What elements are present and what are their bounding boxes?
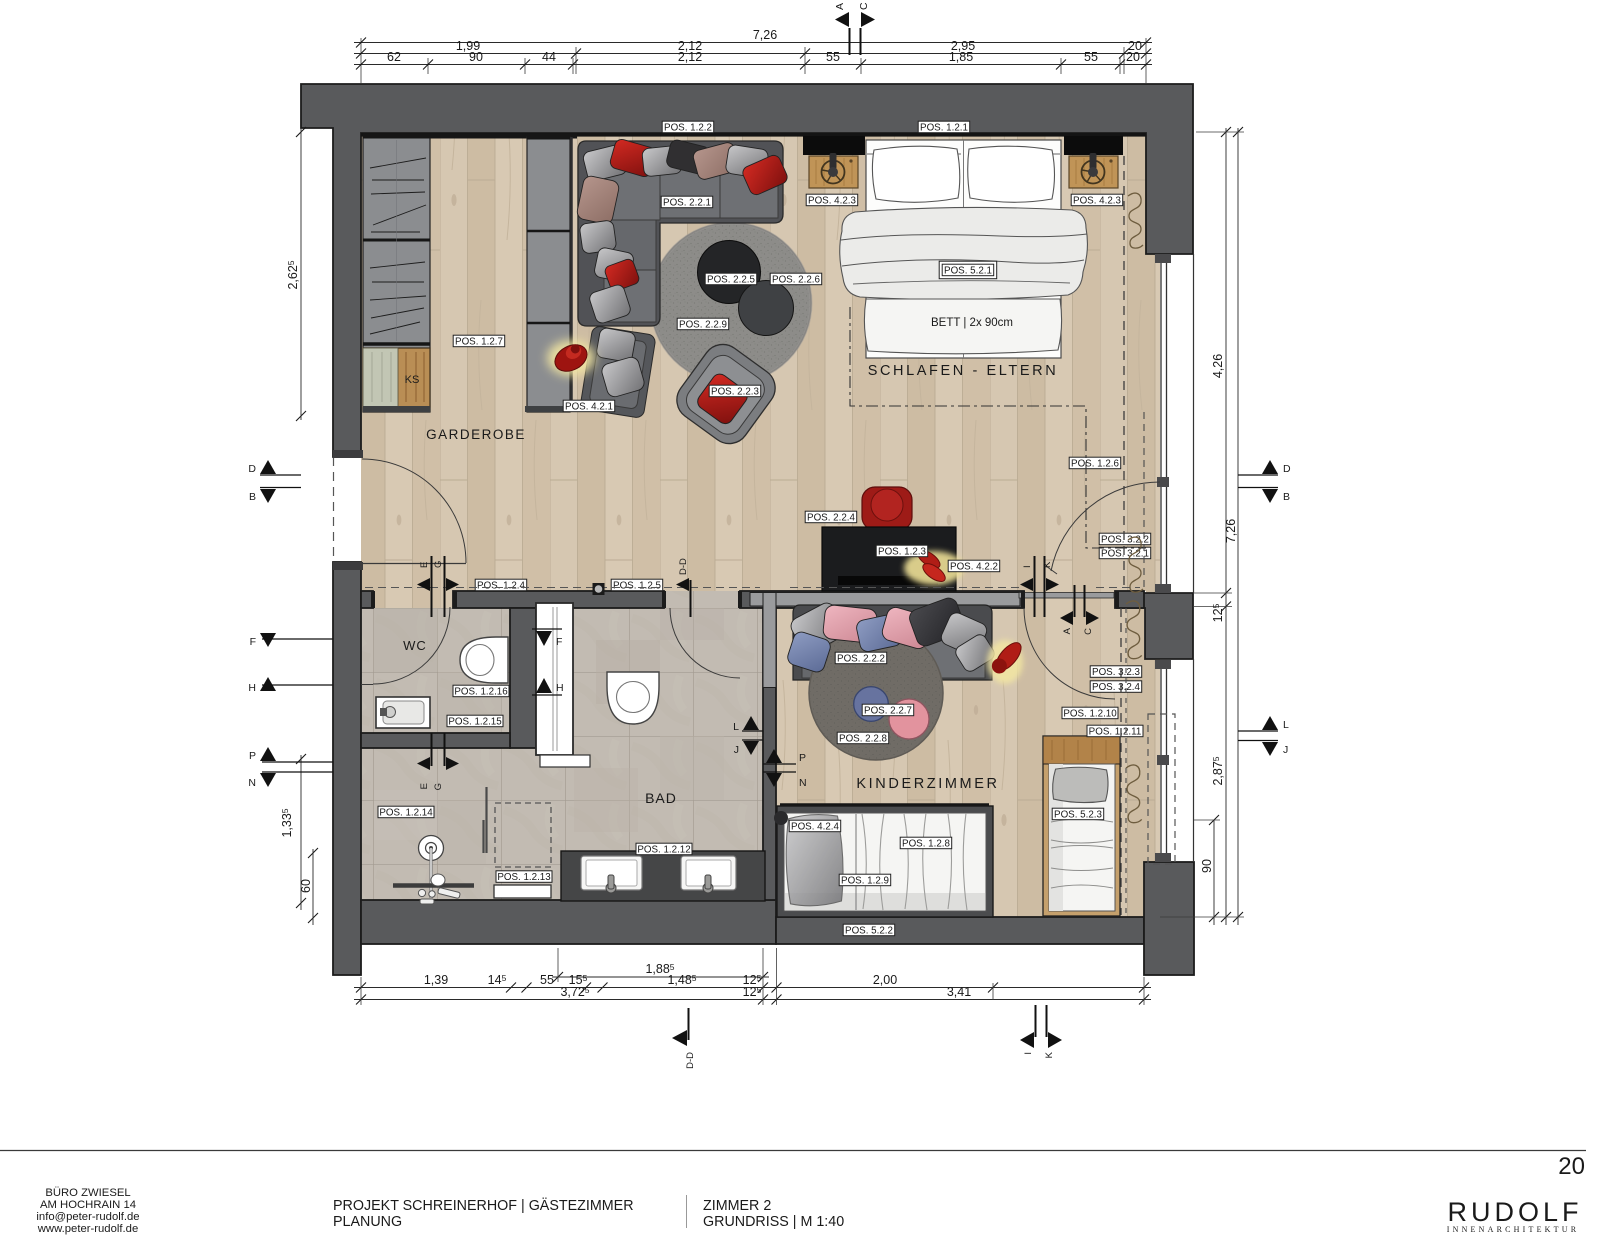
svg-text:C: C (858, 2, 870, 10)
svg-text:POS. 5.2.2: POS. 5.2.2 (845, 925, 893, 936)
svg-text:A: A (834, 3, 846, 10)
svg-text:1,85: 1,85 (949, 50, 973, 64)
svg-text:P: P (799, 752, 806, 764)
svg-text:POS. 1.2.5: POS. 1.2.5 (613, 580, 661, 591)
svg-text:3,41: 3,41 (947, 985, 971, 999)
svg-text:AM HOCHRAIN 14: AM HOCHRAIN 14 (40, 1199, 136, 1211)
svg-text:POS. 3.2.1: POS. 3.2.1 (1101, 548, 1149, 559)
svg-text:B: B (249, 491, 256, 503)
svg-text:44: 44 (542, 50, 556, 64)
svg-text:H: H (248, 682, 256, 694)
svg-text:POS. 1.2.8: POS. 1.2.8 (902, 838, 950, 849)
svg-text:BÜRO ZWIESEL: BÜRO ZWIESEL (45, 1187, 130, 1199)
svg-text:D: D (248, 463, 256, 475)
svg-text:D-D: D-D (678, 558, 689, 575)
svg-text:4,26: 4,26 (1211, 354, 1225, 378)
svg-text:L: L (1283, 719, 1289, 731)
svg-text:POS. 4.2.3: POS. 4.2.3 (808, 195, 856, 206)
svg-text:N: N (248, 777, 256, 789)
svg-text:2,12: 2,12 (678, 50, 702, 64)
svg-text:POS. 1.2.3: POS. 1.2.3 (878, 546, 926, 557)
svg-text:RUDOLF: RUDOLF (1447, 1197, 1582, 1227)
svg-text:P: P (249, 750, 256, 762)
svg-text:POS. 1.2.12: POS. 1.2.12 (637, 844, 690, 855)
svg-text:POS. 3.2.2: POS. 3.2.2 (1101, 534, 1149, 545)
svg-text:D: D (1283, 463, 1291, 475)
svg-text:E: E (419, 783, 430, 789)
svg-text:K: K (1044, 1051, 1055, 1058)
svg-text:90: 90 (1200, 859, 1214, 873)
svg-text:POS. 3.2.3: POS. 3.2.3 (1092, 667, 1140, 678)
svg-text:info@peter-rudolf.de: info@peter-rudolf.de (36, 1211, 139, 1223)
svg-text:BAD: BAD (645, 790, 677, 806)
svg-text:POS. 1.2.6: POS. 1.2.6 (1071, 458, 1119, 469)
svg-text:POS. 4.2.4: POS. 4.2.4 (791, 821, 839, 832)
svg-text:SCHLAFEN - ELTERN: SCHLAFEN - ELTERN (868, 363, 1059, 379)
svg-text:POS. 5.2.1: POS. 5.2.1 (944, 265, 992, 276)
svg-text:2,00: 2,00 (873, 973, 897, 987)
svg-text:L: L (733, 721, 739, 733)
svg-text:20: 20 (1126, 50, 1140, 64)
svg-text:G: G (433, 783, 444, 790)
svg-text:55: 55 (540, 973, 554, 987)
svg-text:POS. 2.2.9: POS. 2.2.9 (679, 319, 727, 330)
svg-text:N: N (799, 777, 807, 789)
svg-text:POS. 1.2.16: POS. 1.2.16 (454, 686, 508, 697)
svg-text:POS. 2.2.1: POS. 2.2.1 (663, 197, 711, 208)
svg-text:55: 55 (1084, 50, 1098, 64)
svg-text:G: G (433, 561, 444, 568)
svg-text:POS. 2.2.4: POS. 2.2.4 (807, 512, 855, 523)
svg-text:WC: WC (403, 638, 427, 653)
svg-text:J: J (1283, 744, 1288, 756)
svg-text:7,26: 7,26 (1224, 519, 1238, 543)
svg-text:POS. 1.2.7: POS. 1.2.7 (455, 336, 503, 347)
svg-text:20: 20 (1558, 1153, 1585, 1180)
svg-text:POS. 5.2.3: POS. 5.2.3 (1054, 809, 1102, 820)
svg-text:62: 62 (387, 50, 401, 64)
svg-text:POS. 1.2.2: POS. 1.2.2 (664, 122, 712, 133)
svg-text:POS. 1.2.10: POS. 1.2.10 (1063, 708, 1117, 719)
svg-text:POS. 2.2.7: POS. 2.2.7 (864, 705, 912, 716)
svg-text:KS: KS (405, 374, 420, 386)
svg-text:POS. 2.2.3: POS. 2.2.3 (711, 386, 759, 397)
svg-text:POS. 4.2.2: POS. 4.2.2 (950, 561, 998, 572)
svg-text:POS. 2.2.8: POS. 2.2.8 (839, 733, 887, 744)
svg-text:POS. 3.2.4: POS. 3.2.4 (1092, 682, 1140, 693)
svg-text:POS. 2.2.6: POS. 2.2.6 (772, 274, 820, 285)
svg-text:ZIMMER 2: ZIMMER 2 (703, 1198, 771, 1214)
svg-text:POS. 1.2.4: POS. 1.2.4 (477, 580, 525, 591)
svg-text:POS. 1.2.9: POS. 1.2.9 (841, 875, 889, 886)
svg-text:90: 90 (469, 50, 483, 64)
svg-text:POS. 2.2.5: POS. 2.2.5 (707, 274, 755, 285)
svg-text:D-D: D-D (685, 1052, 696, 1069)
svg-text:60: 60 (299, 879, 313, 893)
svg-text:A: A (1062, 627, 1073, 634)
svg-text:1,39: 1,39 (424, 973, 448, 987)
svg-text:POS. 1.2.13: POS. 1.2.13 (497, 872, 551, 883)
svg-text:B: B (1283, 491, 1290, 503)
svg-text:BETT | 2x 90cm: BETT | 2x 90cm (931, 317, 1013, 329)
svg-text:POS. 1.2.15: POS. 1.2.15 (448, 716, 502, 727)
svg-text:55: 55 (826, 50, 840, 64)
svg-text:KINDERZIMMER: KINDERZIMMER (856, 776, 999, 792)
svg-text:I: I (1023, 1052, 1034, 1055)
svg-text:INNENARCHITEKTUR: INNENARCHITEKTUR (1447, 1225, 1580, 1234)
svg-text:PLANUNG: PLANUNG (333, 1214, 402, 1230)
svg-text:POS. 4.2.3: POS. 4.2.3 (1073, 195, 1121, 206)
svg-text:F: F (250, 636, 256, 648)
svg-text:F: F (556, 636, 562, 648)
svg-text:POS. 4.2.1: POS. 4.2.1 (565, 401, 613, 412)
svg-text:I: I (1022, 565, 1033, 568)
svg-text:www.peter-rudolf.de: www.peter-rudolf.de (37, 1223, 138, 1235)
svg-text:E: E (419, 562, 430, 568)
svg-text:PROJEKT SCHREINERHOF | GÄSTEZI: PROJEKT SCHREINERHOF | GÄSTEZIMMER (333, 1197, 634, 1214)
svg-text:GRUNDRISS | M 1:40: GRUNDRISS | M 1:40 (703, 1214, 844, 1230)
svg-text:C: C (1083, 628, 1094, 635)
svg-text:POS. 2.2.2: POS. 2.2.2 (837, 653, 885, 664)
svg-text:J: J (734, 744, 739, 756)
svg-text:POS. 1.2.14: POS. 1.2.14 (379, 807, 433, 818)
svg-text:K: K (1042, 561, 1053, 568)
svg-text:GARDEROBE: GARDEROBE (426, 427, 526, 442)
svg-text:POS. 1.2.11: POS. 1.2.11 (1089, 726, 1142, 737)
svg-text:H: H (556, 682, 564, 694)
svg-text:7,26: 7,26 (753, 28, 777, 42)
svg-text:POS. 1.2.1: POS. 1.2.1 (920, 122, 968, 133)
